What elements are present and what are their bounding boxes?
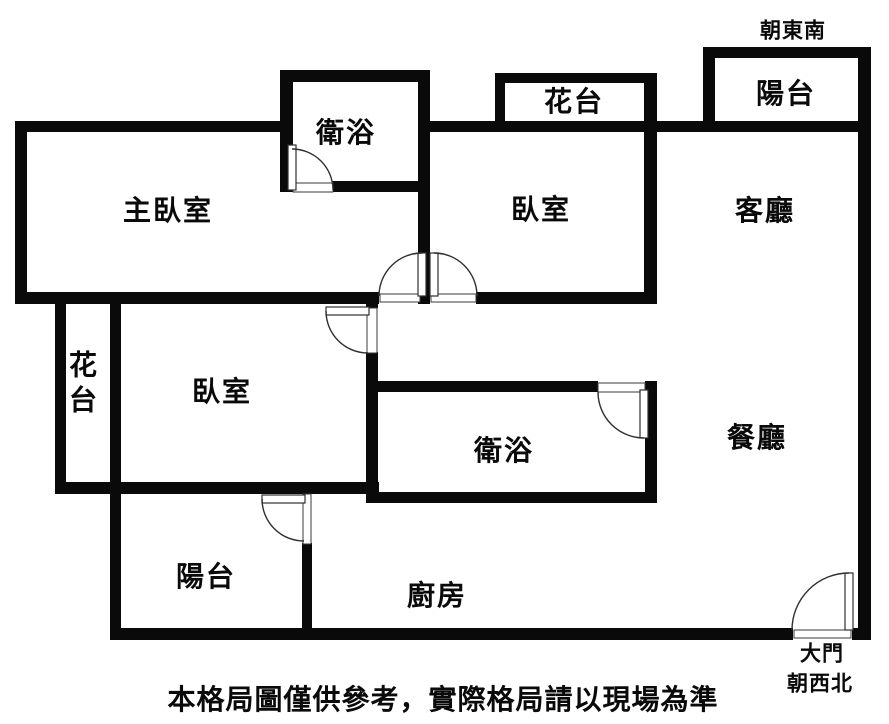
room-label-flower-box-left: 花 台 xyxy=(69,352,97,415)
room-label-bedroom-mid: 臥室 xyxy=(192,378,252,406)
wall-top-main xyxy=(418,121,871,132)
room-label-kitchen: 廚房 xyxy=(407,582,467,610)
wall-right-outer xyxy=(858,47,871,640)
wall-balcony-top-top xyxy=(703,47,871,58)
door-arc-balcony-bottom xyxy=(262,499,304,541)
main-door-label: 大門 xyxy=(800,644,844,665)
wall-bedroom-mid-right-lower xyxy=(366,352,378,503)
door-arc-master xyxy=(379,253,422,296)
door-leaf-balcony-bottom xyxy=(262,495,305,503)
wall-bedroom-mid-right-upper xyxy=(366,292,378,308)
room-label-balcony-top: 陽台 xyxy=(756,80,816,108)
wall-flowerstrip-right xyxy=(110,292,121,640)
wall-bath-mid-bottom xyxy=(366,492,657,503)
door-arc-bedroom-top xyxy=(434,253,477,296)
floor-plan: 朝東南 陽台 花台 衛浴 主臥室 臥室 客廳 花 台 臥室 衛浴 餐廳 陽台 廚… xyxy=(0,0,889,724)
wall-bottom-outer xyxy=(110,628,793,640)
door-leaf-main xyxy=(845,573,853,630)
door-leaf-bath-mid xyxy=(640,390,648,438)
threshold-bath-top xyxy=(293,183,333,192)
door-leaf-bath-top xyxy=(288,145,296,190)
wall-lower-left-outer xyxy=(55,292,66,494)
threshold-bath-mid-door xyxy=(598,383,645,392)
room-label-bedroom-top: 臥室 xyxy=(511,196,571,224)
door-arc-bedroom-mid xyxy=(326,311,368,353)
wall-flowerbox-top-top xyxy=(495,73,657,83)
threshold-main-door xyxy=(794,630,851,638)
wall-balcony-bottom-right xyxy=(302,543,312,640)
door-leaf-bedroom-top xyxy=(430,253,438,296)
wall-mid-horizontal-left xyxy=(15,292,379,304)
wall-bath-top-top xyxy=(280,70,430,82)
orientation-bottom-label: 朝西北 xyxy=(787,674,853,695)
walls xyxy=(15,47,871,640)
orientation-top-label: 朝東南 xyxy=(760,21,826,42)
wall-balcony-top-left xyxy=(703,47,715,132)
wall-bedroom-living-divider xyxy=(644,73,657,304)
door-leaf-bedroom-mid xyxy=(326,307,369,315)
room-label-dining-room: 餐廳 xyxy=(727,424,787,452)
room-label-flower-box-top: 花台 xyxy=(544,88,604,116)
wall-master-top xyxy=(15,121,293,132)
flower-box-left-char-2: 台 xyxy=(69,387,97,415)
room-label-master-bedroom: 主臥室 xyxy=(123,197,213,225)
disclaimer-caption: 本格局圖僅供參考，實際格局請以現場為準 xyxy=(167,686,718,714)
door-arc-main xyxy=(792,573,849,630)
wall-mid-horizontal-right xyxy=(476,292,657,304)
room-label-balcony-bottom: 陽台 xyxy=(176,563,236,591)
flower-box-left-char-1: 花 xyxy=(69,352,97,380)
door-leaf-master xyxy=(418,253,426,296)
wall-bath-top-bottom xyxy=(332,181,430,192)
wall-master-left xyxy=(15,121,27,304)
room-label-bathroom-mid: 衛浴 xyxy=(474,437,534,465)
wall-bottom-right-stub xyxy=(852,628,871,640)
wall-bath-mid-top xyxy=(366,381,598,392)
room-label-living-room: 客廳 xyxy=(735,197,795,225)
room-label-bathroom-top: 衛浴 xyxy=(316,119,376,147)
door-arc-bath-mid xyxy=(598,392,644,438)
wall-bedroom-mid-bottom xyxy=(55,482,379,494)
threshold-master-door xyxy=(380,294,420,302)
